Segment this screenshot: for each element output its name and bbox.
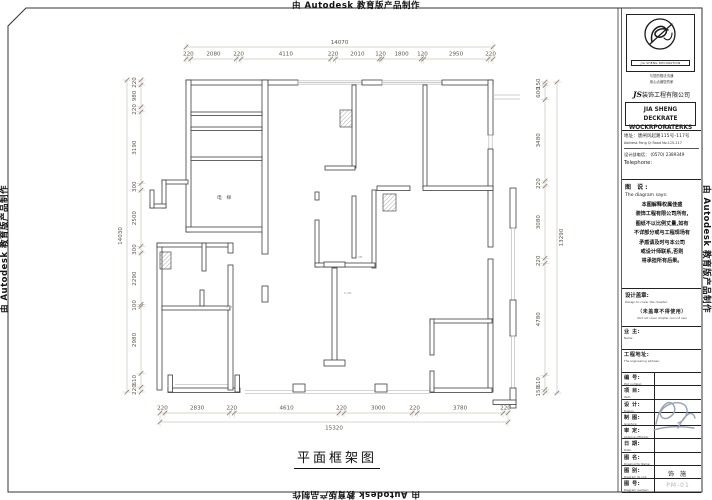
field-label-cn: 图 名: bbox=[624, 454, 654, 461]
titleblock-field-row: 编 号:Plot number: bbox=[622, 373, 701, 386]
svg-text:220: 220 bbox=[485, 52, 496, 58]
svg-text:220: 220 bbox=[336, 406, 347, 412]
seal-warning-cn: （未盖章不得使用） bbox=[625, 308, 699, 315]
svg-text:0.2M: 0.2M bbox=[226, 305, 234, 309]
svg-text:2290: 2290 bbox=[132, 271, 138, 286]
svg-text:3480: 3480 bbox=[536, 133, 542, 148]
address-cn: 地址：唐闸风起路115号-117号 bbox=[624, 133, 699, 139]
company-logo-icon bbox=[627, 15, 694, 57]
svg-text:3190: 3190 bbox=[132, 140, 138, 155]
elevator-label: 电 梯 bbox=[217, 194, 233, 201]
svg-text:14070: 14070 bbox=[331, 40, 349, 46]
seal-label-cn: 设计盖章: bbox=[625, 291, 699, 299]
field-value bbox=[655, 439, 701, 451]
svg-text:2830: 2830 bbox=[190, 406, 205, 412]
field-label-en: Diagram number: bbox=[624, 488, 654, 492]
company-name-cn: JS装饰工程有限公司 bbox=[622, 90, 701, 101]
company-monogram: JS bbox=[633, 90, 642, 99]
seal-label-en: Design to cover the chapter: bbox=[625, 300, 699, 304]
watermark-bottom: 由 Autodesk 教育版产品制作 bbox=[286, 489, 426, 500]
svg-text:220: 220 bbox=[183, 52, 194, 58]
svg-text:2080: 2080 bbox=[206, 52, 221, 58]
note-line: 或设计师联系,否则 bbox=[625, 248, 699, 257]
titleblock-field-row: 图 号:Diagram number:PM-01 bbox=[622, 479, 701, 492]
contact-section: 地址：唐闸风起路115号-117号 Address Feng Qi Road N… bbox=[622, 130, 701, 180]
phone-cn: 设计部电话： (0570) 2389349 bbox=[624, 152, 699, 158]
floor-plan-walls bbox=[150, 80, 520, 408]
svg-text:3000: 3000 bbox=[371, 406, 386, 412]
svg-text:220: 220 bbox=[157, 406, 168, 412]
svg-text:100: 100 bbox=[132, 300, 138, 311]
svg-text:220: 220 bbox=[328, 52, 339, 58]
svg-text:1800: 1800 bbox=[394, 52, 409, 58]
svg-text:220: 220 bbox=[536, 255, 542, 266]
svg-text:980: 980 bbox=[132, 90, 138, 101]
note-line: 矛盾请及时与本公司 bbox=[625, 239, 699, 248]
svg-text:2500: 2500 bbox=[132, 211, 138, 226]
note-line: 不详部分或与工程现场有 bbox=[625, 229, 699, 238]
svg-text:220: 220 bbox=[500, 406, 511, 412]
svg-text:610: 610 bbox=[132, 374, 138, 385]
company-en-line-1: JIA SHENG DECKRATE bbox=[626, 106, 695, 124]
note-line: 本图解释权属佳盛 bbox=[625, 201, 699, 210]
address-en: Address Feng Qi Road No.115-117 bbox=[624, 141, 699, 149]
svg-text:150: 150 bbox=[536, 385, 542, 396]
svg-text:220: 220 bbox=[132, 77, 138, 88]
field-value bbox=[655, 453, 701, 465]
watermark-left: 由 Autodesk 教育版产品制作 bbox=[0, 179, 10, 319]
note-title-en: The diagram says: bbox=[625, 193, 699, 198]
svg-text:220: 220 bbox=[226, 406, 237, 412]
svg-text:14030: 14030 bbox=[118, 227, 124, 245]
svg-text:2980: 2980 bbox=[132, 332, 138, 347]
watermark-top: 由 Autodesk 教育版产品制作 bbox=[286, 0, 426, 11]
svg-text:220: 220 bbox=[409, 406, 420, 412]
seal-warning-en: (Did not cover chapter can not use) bbox=[625, 316, 699, 320]
note-line: 将承担所有后果。 bbox=[625, 257, 699, 266]
titleblock-field-row: 图 名:Drawing for Name: bbox=[622, 453, 701, 466]
svg-text:4110: 4110 bbox=[279, 52, 294, 58]
svg-text:120: 120 bbox=[417, 52, 428, 58]
svg-text:4780: 4780 bbox=[536, 312, 542, 327]
svg-text:0.2M: 0.2M bbox=[344, 291, 352, 295]
titleblock-field-row: 业 主:Name: bbox=[622, 327, 701, 350]
logo-caption: JIA SHENG DECORATION bbox=[631, 60, 690, 66]
svg-text:0.3M: 0.3M bbox=[355, 255, 363, 259]
svg-text:13290: 13290 bbox=[559, 228, 565, 246]
field-label-en: The engineering address: bbox=[624, 359, 660, 363]
note-line: 装饰工程有限公司所有, bbox=[625, 210, 699, 219]
svg-text:120: 120 bbox=[375, 52, 386, 58]
field-value: PM-01 bbox=[655, 479, 701, 491]
field-label-cn: 日 期: bbox=[624, 440, 654, 447]
field-label-en: Name: bbox=[624, 336, 640, 340]
floor-plan-svg: 电 梯 220208022041102202010120180012029502… bbox=[0, 0, 712, 500]
svg-text:15320: 15320 bbox=[325, 426, 343, 432]
svg-text:300: 300 bbox=[132, 181, 138, 192]
svg-text:220: 220 bbox=[132, 104, 138, 115]
note-line: 图纸不以比例丈量,如有 bbox=[625, 220, 699, 229]
note-title-cn: 图 说: bbox=[625, 182, 699, 191]
titleblock-field-row: 日 期:Date: bbox=[622, 439, 701, 452]
svg-text:3080: 3080 bbox=[536, 215, 542, 230]
svg-text:2010: 2010 bbox=[350, 52, 365, 58]
field-label-cn: 业 主: bbox=[624, 328, 640, 335]
svg-text:600: 600 bbox=[536, 87, 542, 98]
svg-text:2950: 2950 bbox=[449, 52, 464, 58]
drawing-sheet: 电 梯 220208022041102202010120180012029502… bbox=[0, 0, 712, 500]
svg-text:3780: 3780 bbox=[453, 406, 468, 412]
watermark-right: 由 Autodesk 教育版产品制作 bbox=[701, 179, 712, 319]
note-text: 本图解释权属佳盛装饰工程有限公司所有,图纸不以比例丈量,如有不详部分或与工程现场… bbox=[625, 201, 699, 267]
titleblock-field-row: 工程地址:The engineering address: bbox=[622, 350, 701, 373]
svg-text:220: 220 bbox=[536, 178, 542, 189]
field-label-cn: 图 号: bbox=[624, 480, 654, 487]
svg-text:4610: 4610 bbox=[280, 406, 295, 412]
field-value: 饰 施 bbox=[655, 466, 701, 478]
svg-text:300: 300 bbox=[132, 244, 138, 255]
company-name-en: JIA SHENG DECKRATE WOCKRPORATERKS bbox=[625, 102, 696, 126]
company-slogan: 与您的想法沟通 用心点缀您的家 bbox=[622, 74, 701, 90]
slogan-line-2: 用心点缀您的家 bbox=[622, 80, 701, 86]
design-seal-section: 设计盖章: Design to cover the chapter: （未盖章不… bbox=[622, 288, 701, 326]
svg-text:220: 220 bbox=[132, 384, 138, 395]
sheet-title: 平面框架图 bbox=[294, 447, 380, 469]
titleblock-field-row: 图 别:Diagram do not:饰 施 bbox=[622, 466, 701, 479]
company-logo-box: JIA SHENG DECORATION bbox=[626, 14, 695, 72]
diagram-note-section: 图 说: The diagram says: 本图解释权属佳盛装饰工程有限公司所… bbox=[622, 180, 701, 288]
svg-text:220: 220 bbox=[233, 52, 244, 58]
field-label-cn: 编 号: bbox=[624, 374, 654, 381]
phone-en: Telephone: bbox=[624, 160, 699, 166]
field-value bbox=[655, 373, 701, 385]
designer-signature bbox=[650, 392, 698, 440]
field-label-cn: 图 别: bbox=[624, 467, 654, 474]
field-label-cn: 工程地址: bbox=[624, 351, 660, 358]
